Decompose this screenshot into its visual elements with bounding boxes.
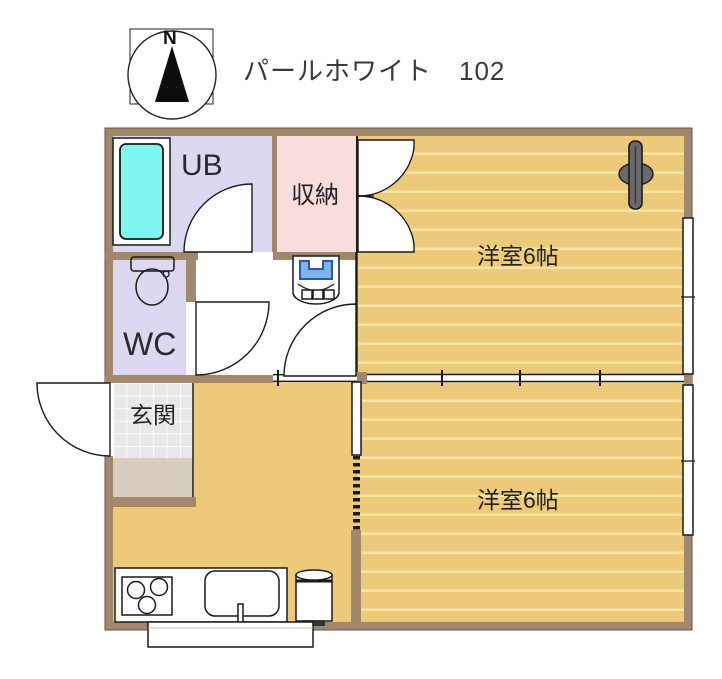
- faucet-icon: [238, 604, 243, 623]
- room-label-closet: 収納: [291, 184, 339, 208]
- compass-north-label: N: [163, 29, 177, 48]
- room-label-western-room-bottom: 洋室6帖: [477, 489, 559, 512]
- floorplan-image: N パールホワイト 102 UB 収納 洋室6帖 WC 玄関 洋室6帖: [0, 0, 722, 679]
- washbasin-icon: [293, 256, 339, 304]
- kitchen-counter: [115, 568, 287, 623]
- sliding-door: [352, 382, 361, 530]
- porch-step: [148, 622, 313, 647]
- window-right-top: [681, 218, 695, 374]
- room-label-entrance: 玄関: [130, 404, 176, 427]
- entrance-door-arc: [37, 383, 110, 456]
- floorplan-drawing: [0, 0, 722, 679]
- water-heater-icon: [296, 570, 332, 626]
- entrance-step: [113, 458, 193, 497]
- room-label-wc: WC: [123, 328, 176, 360]
- stove-icon: [122, 577, 172, 615]
- bathtub-icon: [113, 138, 170, 245]
- room-label-unit-bath: UB: [181, 151, 223, 181]
- room-label-western-room-top: 洋室6帖: [477, 245, 559, 268]
- window-right-bottom: [681, 385, 695, 535]
- plan-title: パールホワイト 102: [243, 58, 505, 84]
